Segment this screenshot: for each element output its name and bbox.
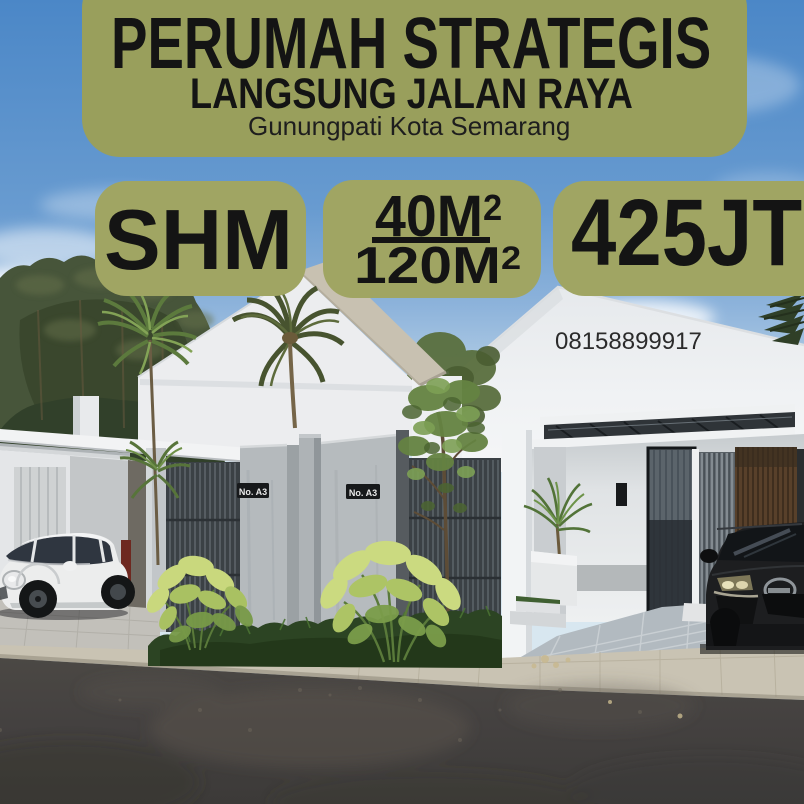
svg-text:No. A3: No. A3 [349, 488, 377, 498]
svg-text:No. A3: No. A3 [239, 487, 267, 497]
